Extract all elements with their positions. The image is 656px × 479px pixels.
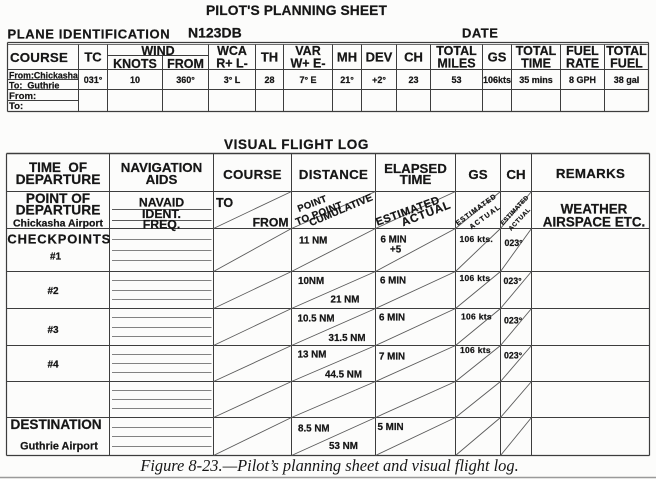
svg-text:AIRSPACE ETC.: AIRSPACE ETC. [543, 215, 645, 230]
svg-text:R+ L-: R+ L- [216, 57, 248, 71]
svg-text:7° E: 7° E [299, 75, 316, 85]
svg-text:106 kts.: 106 kts. [460, 234, 494, 244]
svg-text:3° L: 3° L [224, 75, 241, 85]
svg-text:10: 10 [130, 75, 140, 85]
svg-text:106 kts: 106 kts [460, 273, 491, 283]
svg-text:#1: #1 [50, 251, 62, 262]
svg-text:GS: GS [488, 50, 507, 65]
svg-text:AIDS: AIDS [146, 172, 178, 187]
svg-text:N123DB: N123DB [188, 25, 242, 41]
svg-text:53 NM: 53 NM [329, 441, 358, 452]
svg-text:106 kts: 106 kts [461, 312, 492, 322]
svg-text:21°: 21° [340, 75, 354, 85]
svg-text:GS: GS [468, 167, 487, 182]
svg-text:023°: 023° [504, 350, 523, 360]
svg-text:+2°: +2° [372, 75, 386, 85]
svg-text:8.5 NM: 8.5 NM [298, 424, 330, 435]
svg-text:360°: 360° [176, 75, 195, 85]
svg-text:35 mins: 35 mins [519, 75, 553, 85]
svg-text:13 NM: 13 NM [298, 350, 327, 361]
svg-text:10.5 NM: 10.5 NM [298, 314, 335, 325]
svg-text:From:Chickasha: From:Chickasha [9, 70, 78, 80]
svg-text:21 NM: 21 NM [331, 295, 360, 306]
svg-text:10NM: 10NM [298, 276, 324, 287]
svg-text:TIME: TIME [521, 57, 551, 71]
svg-text:#3: #3 [47, 325, 59, 336]
svg-text:8 GPH: 8 GPH [569, 75, 596, 85]
svg-text:023°: 023° [504, 315, 523, 325]
svg-text:COURSE: COURSE [10, 50, 68, 65]
svg-text:MILES: MILES [437, 57, 475, 71]
svg-text:WIND: WIND [141, 44, 174, 58]
svg-text:RATE: RATE [566, 57, 599, 71]
svg-text:38 gal: 38 gal [614, 75, 640, 85]
svg-text:TO: TO [216, 196, 233, 210]
svg-text:11 NM: 11 NM [299, 235, 327, 246]
svg-text:FREQ.: FREQ. [143, 218, 181, 232]
svg-text:MH: MH [337, 50, 357, 65]
svg-text:DISTANCE: DISTANCE [299, 167, 368, 182]
svg-text:Figure 8-23.—Pilot’s planning: Figure 8-23.—Pilot’s planning sheet and … [139, 456, 518, 475]
svg-text:5 MIN: 5 MIN [378, 422, 404, 433]
svg-text:To: Guthrie: To: Guthrie [9, 81, 59, 91]
svg-text:+5: +5 [390, 245, 402, 256]
svg-text:023°: 023° [504, 276, 523, 286]
svg-text:031°: 031° [84, 75, 103, 85]
svg-text:CHECKPOINTS: CHECKPOINTS [7, 232, 111, 247]
svg-text:31.5 NM: 31.5 NM [329, 333, 366, 344]
svg-text:PILOT'S PLANNING SHEET: PILOT'S PLANNING SHEET [206, 3, 387, 18]
svg-text:FROM: FROM [253, 216, 289, 230]
svg-text:DATE: DATE [462, 26, 498, 41]
svg-text:106kts: 106kts [483, 75, 511, 85]
svg-text:REMARKS: REMARKS [556, 166, 625, 181]
svg-text:7 MIN: 7 MIN [379, 351, 405, 362]
svg-text:#4: #4 [47, 359, 59, 370]
svg-text:FUEL: FUEL [610, 57, 643, 71]
svg-text:DEPARTURE: DEPARTURE [16, 203, 101, 218]
svg-text:COURSE: COURSE [223, 167, 282, 182]
svg-text:Chickasha Airport: Chickasha Airport [13, 217, 104, 229]
svg-text:28: 28 [264, 75, 274, 85]
svg-text:TC: TC [84, 50, 102, 65]
svg-text:KNOTS: KNOTS [113, 57, 157, 71]
svg-text:6 MIN: 6 MIN [379, 313, 405, 324]
svg-text:To:: To: [9, 101, 23, 112]
svg-text:CH: CH [404, 50, 423, 65]
svg-text:TIME: TIME [400, 172, 432, 187]
svg-text:PLANE IDENTIFICATION: PLANE IDENTIFICATION [8, 27, 171, 42]
svg-text:FROM: FROM [167, 57, 204, 71]
svg-text:TH: TH [261, 50, 278, 65]
svg-text:106 kts: 106 kts [460, 345, 491, 355]
svg-text:Guthrie Airport: Guthrie Airport [20, 440, 98, 452]
svg-text:VISUAL FLIGHT LOG: VISUAL FLIGHT LOG [224, 137, 369, 152]
svg-text:023°: 023° [505, 238, 524, 248]
svg-text:#2: #2 [47, 286, 59, 297]
svg-text:DESTINATION: DESTINATION [11, 417, 102, 432]
svg-text:W+ E-: W+ E- [290, 57, 325, 71]
svg-text:53: 53 [451, 75, 461, 85]
svg-text:DEPARTURE: DEPARTURE [16, 172, 101, 187]
svg-text:6 MIN: 6 MIN [380, 276, 406, 287]
svg-text:CH: CH [506, 167, 525, 182]
svg-text:23: 23 [408, 75, 418, 85]
svg-text:DEV: DEV [366, 50, 393, 65]
svg-text:44.5 NM: 44.5 NM [325, 370, 362, 381]
